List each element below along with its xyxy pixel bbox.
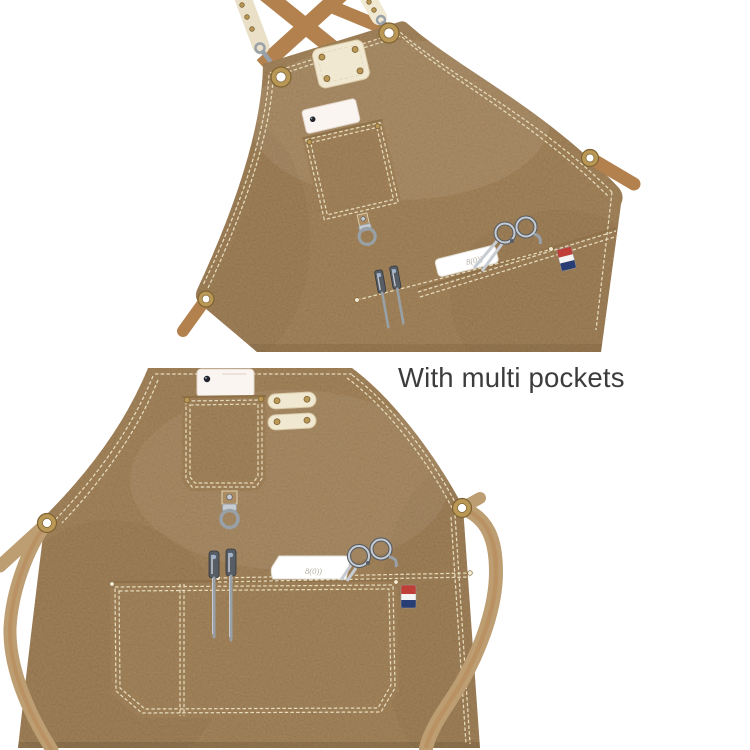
grommet-waist-left xyxy=(38,514,57,533)
caption: With multi pockets xyxy=(398,362,625,394)
grommet-top-right xyxy=(379,23,399,43)
grommet-top-left xyxy=(271,67,291,87)
grommet-waist-right xyxy=(453,499,472,518)
apron-bottom-view: 8(0)) xyxy=(0,368,520,750)
grommet-waist-right xyxy=(582,150,599,167)
comb: 8(0)) xyxy=(271,556,350,579)
svg-text:8(0)): 8(0)) xyxy=(305,566,322,576)
leather-tab-1 xyxy=(268,392,317,409)
grommet-waist-left xyxy=(198,291,214,307)
chest-pocket xyxy=(182,396,266,491)
product-image: 8(0)) xyxy=(0,0,750,750)
waist-pocket xyxy=(110,580,399,718)
leather-tab-2 xyxy=(268,413,317,430)
apron-top-view: 8(0)) xyxy=(170,0,670,390)
apron-illustration: 8(0)) xyxy=(0,0,750,750)
flag-tag xyxy=(401,585,416,608)
phone xyxy=(197,369,254,397)
